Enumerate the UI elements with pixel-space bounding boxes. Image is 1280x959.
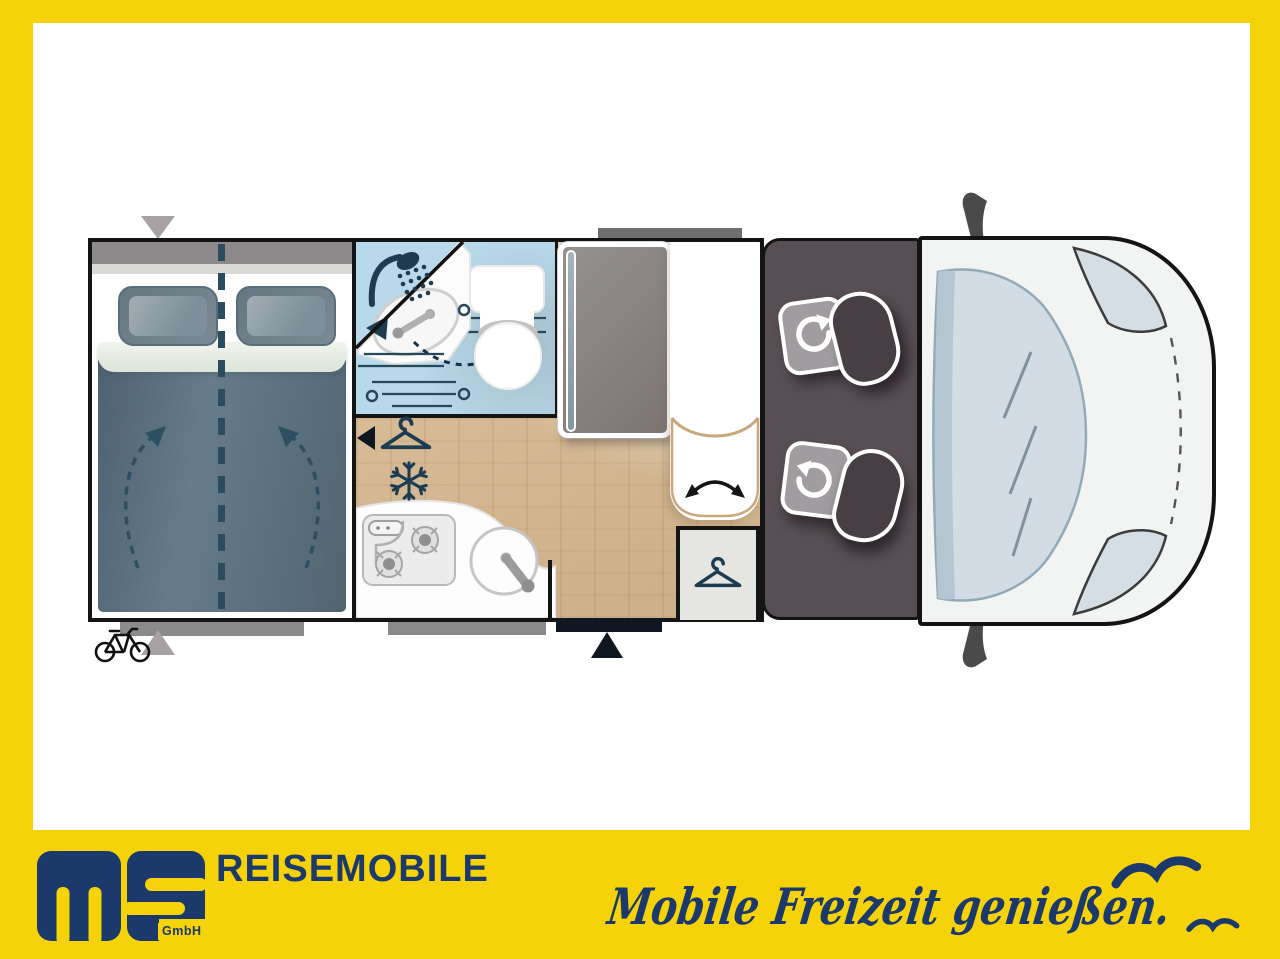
garage-door-bar-kitchen (388, 622, 546, 635)
fridge-snowflake-icon (388, 458, 430, 504)
swivel-arrow-icon-driver (788, 310, 838, 360)
front-details (922, 240, 1212, 622)
bathroom-zone (356, 242, 558, 418)
headlight-left (1074, 248, 1166, 332)
entry-door-triangle (591, 632, 623, 658)
hanger-icon-wardrobe (692, 557, 744, 593)
bathroom-fixtures (356, 242, 555, 414)
rear-wardrobe (676, 526, 760, 620)
page: GmbH REISEMOBILE Mobile Freizeit genieße… (0, 0, 1280, 959)
bed-width-triangle-top (141, 216, 175, 239)
dinette-seat-outline (670, 402, 760, 520)
hanger-icon-hallway (378, 416, 434, 456)
headlight-right (1074, 530, 1166, 614)
dinette-bench-seat (670, 242, 760, 520)
wardrobe-left-arrow-marker (357, 426, 375, 450)
kitchen-end-wall (548, 560, 552, 618)
seagull-icon-small (1183, 912, 1242, 938)
side-mirror-top-icon (956, 190, 1002, 242)
seagull-icon-large (1103, 848, 1209, 893)
vehicle-front (918, 236, 1216, 626)
swivel-arrow-icon-passenger (790, 456, 839, 505)
dinette-table-rail (566, 250, 576, 432)
seat-swivel-double-arrow-icon (683, 474, 747, 502)
bike-rack-icon (94, 622, 152, 664)
logo-suffix: GmbH (158, 923, 206, 940)
hood-dashed-line (1171, 338, 1181, 524)
bedroom-zone (88, 238, 356, 622)
stove-icon (362, 514, 456, 586)
entry-door-bar (556, 618, 662, 632)
cab-zone (762, 238, 920, 620)
dinette-table (558, 242, 672, 438)
shower-icon (372, 257, 400, 304)
brand-wordmark: REISEMOBILE (216, 850, 489, 888)
kitchen-sink-icon (466, 524, 542, 602)
bed-fold-arrows (92, 242, 352, 618)
slogan-text: Mobile Freizeit genießen. (605, 882, 1173, 932)
